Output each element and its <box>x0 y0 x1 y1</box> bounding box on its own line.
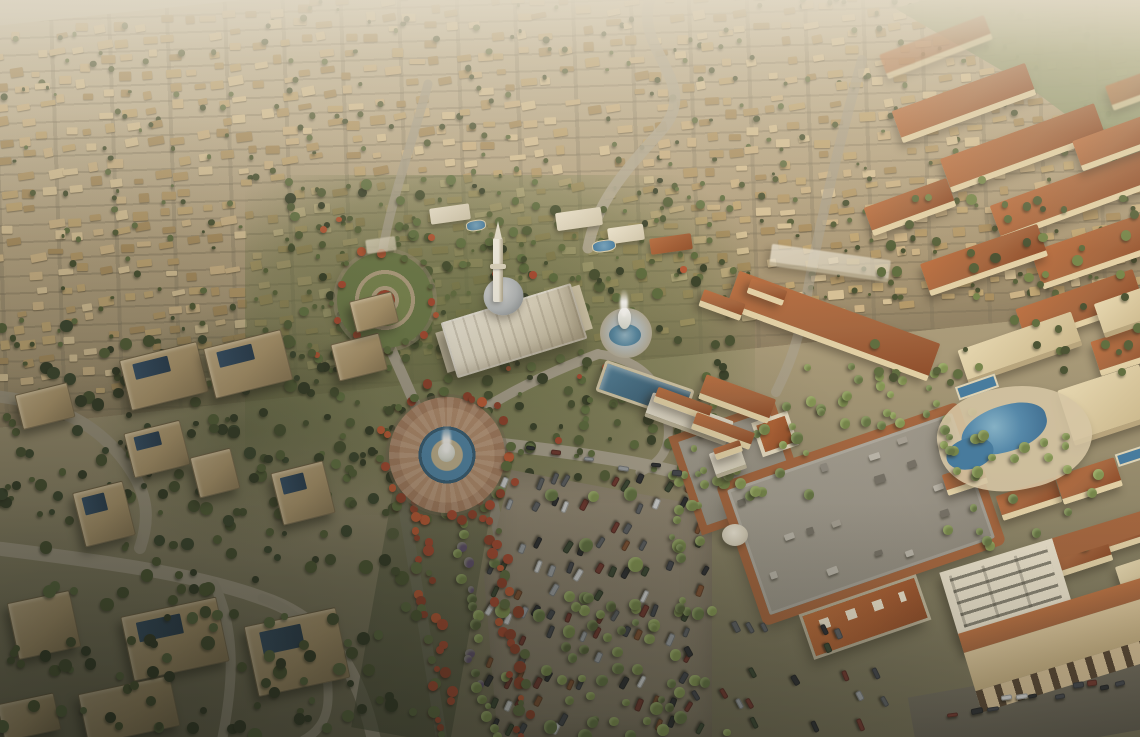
flame-tree <box>438 731 445 737</box>
tree <box>274 424 287 437</box>
flame-tree <box>513 606 525 618</box>
palm-tree <box>481 711 492 722</box>
flame-tree <box>437 724 444 731</box>
tree <box>189 584 199 594</box>
tree <box>1024 273 1034 283</box>
tree <box>932 237 941 246</box>
tree <box>209 623 218 632</box>
tree <box>652 288 663 299</box>
tree <box>346 418 355 427</box>
tree <box>330 387 340 397</box>
palm-tree <box>667 679 676 688</box>
tree <box>413 218 421 226</box>
tree <box>446 175 456 185</box>
flame-tree <box>495 618 503 626</box>
tree <box>333 663 346 676</box>
tree <box>320 226 327 233</box>
tree <box>385 698 399 712</box>
palm-tree <box>587 620 598 631</box>
palm-tree <box>628 557 643 572</box>
palm-tree <box>1063 465 1072 474</box>
palm-tree <box>723 729 731 737</box>
tree <box>518 392 523 397</box>
palm-tree <box>578 729 592 737</box>
palm-tree <box>533 609 546 622</box>
rooftop-ac-unit <box>874 474 886 485</box>
tree <box>0 323 7 333</box>
tree <box>1061 346 1070 355</box>
palm-tree <box>571 602 581 612</box>
tree <box>532 179 538 185</box>
palm-tree <box>686 500 698 512</box>
palm-tree <box>840 418 851 429</box>
palm-tree <box>1064 508 1072 516</box>
palm-tree <box>563 625 576 638</box>
tree <box>1118 368 1126 376</box>
tree <box>175 571 183 579</box>
tree <box>947 379 954 386</box>
tree <box>1101 340 1110 349</box>
palm-tree <box>625 730 636 737</box>
palm-tree <box>471 682 482 693</box>
tree <box>223 515 235 527</box>
tree <box>1042 271 1049 278</box>
flame-tree <box>469 396 476 403</box>
tree <box>719 259 726 266</box>
tree <box>568 400 576 408</box>
palm-tree <box>603 633 612 642</box>
tree <box>1060 366 1068 374</box>
tree <box>531 240 536 245</box>
rooftop-ac-unit <box>905 550 914 558</box>
tree <box>978 176 986 184</box>
tree <box>597 278 602 283</box>
palm-tree <box>670 649 682 661</box>
tree <box>346 647 358 659</box>
flame-tree <box>411 562 423 574</box>
palm-tree <box>695 471 702 478</box>
tree <box>72 425 84 437</box>
flame-tree <box>499 416 508 425</box>
tree <box>512 197 520 205</box>
tree <box>303 420 309 426</box>
palm-tree <box>622 699 630 707</box>
flame-tree <box>501 461 512 472</box>
tree <box>874 367 884 377</box>
palm-tree <box>1062 433 1070 441</box>
flame-tree <box>392 501 402 511</box>
tree <box>630 440 639 449</box>
tree <box>347 680 355 688</box>
tree <box>361 179 372 190</box>
tree <box>725 335 736 346</box>
palm-tree <box>946 434 953 441</box>
tree <box>870 339 880 349</box>
palm-tree <box>632 664 644 676</box>
solar-panel <box>280 473 307 495</box>
tree <box>322 723 332 733</box>
gazebo <box>722 524 748 546</box>
flame-tree <box>447 686 458 697</box>
tree <box>3 413 11 421</box>
tree <box>357 704 367 714</box>
tree <box>456 238 466 248</box>
tree <box>537 373 548 384</box>
tree <box>146 696 156 706</box>
tree <box>889 373 898 382</box>
flame-tree <box>437 619 448 630</box>
solar-panel <box>216 344 255 368</box>
flame-tree <box>477 397 487 407</box>
palm-tree <box>673 516 681 524</box>
tree <box>308 349 316 357</box>
flame-tree <box>376 455 384 463</box>
rooftop-ac-unit <box>769 570 778 579</box>
car <box>550 449 561 455</box>
flame-tree <box>510 644 521 655</box>
tree <box>193 421 199 427</box>
tree <box>1133 323 1140 333</box>
flame-tree <box>457 515 467 525</box>
tree <box>344 639 352 647</box>
tree <box>365 426 374 435</box>
palm-tree <box>561 642 572 653</box>
rooftop-ac-unit <box>868 452 880 461</box>
tree <box>479 188 485 194</box>
palm-tree <box>804 364 811 371</box>
tree <box>248 728 262 737</box>
tree <box>120 338 132 350</box>
palm-tree <box>612 647 623 658</box>
tree <box>1119 195 1127 203</box>
flame-tree <box>377 426 385 434</box>
minaret <box>493 238 503 302</box>
palm-tree <box>803 450 809 456</box>
tree <box>59 659 72 672</box>
tree <box>518 449 524 455</box>
tree <box>269 687 280 698</box>
tree <box>1116 270 1125 279</box>
flame-tree <box>439 387 449 397</box>
tree <box>582 357 592 367</box>
palm-tree <box>782 402 791 411</box>
tree <box>261 678 272 689</box>
tree <box>1023 238 1032 247</box>
flame-tree <box>401 255 408 262</box>
flame-tree <box>440 667 451 678</box>
rooftop-ac-unit <box>907 459 918 469</box>
tree <box>0 488 8 500</box>
tree <box>43 585 56 598</box>
palm-tree <box>541 665 552 676</box>
tree <box>967 249 975 257</box>
palm-tree <box>982 536 992 546</box>
tree <box>892 294 899 301</box>
tree <box>691 252 698 259</box>
tree <box>319 241 326 248</box>
palm-tree <box>1044 453 1054 463</box>
flame-tree <box>402 338 410 346</box>
palm-tree <box>883 409 891 417</box>
tree <box>304 650 317 663</box>
tree <box>343 474 351 482</box>
flame-tree <box>500 599 510 609</box>
palm-tree <box>775 468 785 478</box>
tree <box>577 374 582 379</box>
tree <box>188 500 200 512</box>
tree <box>96 454 108 466</box>
rooftop-ac-unit <box>933 483 944 491</box>
tree <box>587 397 593 403</box>
tree <box>379 554 391 566</box>
tree <box>334 441 346 453</box>
palm-tree <box>943 525 953 535</box>
car <box>1087 679 1098 686</box>
tree <box>1033 341 1041 349</box>
tree <box>190 569 198 577</box>
solar-panel <box>82 493 108 515</box>
palm-tree <box>568 653 578 663</box>
tree <box>316 254 321 259</box>
tree <box>1033 196 1043 206</box>
flame-tree <box>520 649 530 659</box>
tree <box>284 320 293 329</box>
tree <box>164 671 175 682</box>
tree <box>521 256 527 262</box>
palm-tree <box>861 416 872 427</box>
flame-tree <box>487 548 498 559</box>
palm-tree <box>945 446 955 456</box>
tree <box>201 636 215 650</box>
flame-tree <box>428 656 436 664</box>
palm-tree <box>779 441 788 450</box>
tree <box>116 672 125 681</box>
tree <box>877 267 886 276</box>
rooftop-ac-unit <box>940 508 951 517</box>
tree <box>1002 201 1009 208</box>
tree <box>234 720 247 733</box>
palm-tree <box>470 619 481 630</box>
palm-tree <box>842 391 852 401</box>
tree <box>126 412 133 419</box>
palm-tree <box>1008 494 1019 505</box>
flame-tree <box>423 379 433 389</box>
tree <box>190 397 201 408</box>
tree <box>376 696 384 704</box>
palm-tree <box>877 421 886 430</box>
tree <box>1055 325 1063 333</box>
tree <box>559 424 564 429</box>
palm-tree <box>692 607 705 620</box>
palm-tree <box>806 396 817 407</box>
tree <box>99 348 110 359</box>
tree <box>663 197 673 207</box>
palm-tree <box>650 702 663 715</box>
tree <box>707 222 712 227</box>
aerial-community-render <box>0 0 1140 737</box>
tree <box>336 217 342 223</box>
flame-tree <box>381 462 390 471</box>
palm-tree <box>675 603 685 613</box>
tree <box>357 632 370 645</box>
rooftop-ac-unit <box>784 532 795 541</box>
roundabout-fountain-spray <box>442 425 451 453</box>
palm-tree <box>898 376 907 385</box>
palm-tree <box>564 591 575 602</box>
minaret-balcony <box>490 264 506 269</box>
tree <box>600 470 611 481</box>
tree <box>264 455 273 464</box>
tree <box>141 569 154 582</box>
palm-tree <box>674 687 686 699</box>
palm-tree <box>657 724 669 736</box>
flame-tree <box>514 661 526 673</box>
tree <box>509 227 519 237</box>
rooftop-ac-unit <box>874 549 883 556</box>
tree <box>143 335 156 348</box>
flame-tree <box>411 512 421 522</box>
palm-tree <box>676 544 683 551</box>
tree <box>402 354 410 362</box>
tree <box>532 202 540 210</box>
tree <box>966 194 977 205</box>
flame-tree <box>338 281 346 289</box>
tree <box>164 614 171 621</box>
tree <box>158 489 168 499</box>
palm-tree <box>665 703 674 712</box>
tree <box>257 464 266 473</box>
tree <box>12 481 21 490</box>
palm-tree <box>707 606 717 616</box>
rooftop-ac-unit <box>831 519 842 528</box>
tree <box>12 428 20 436</box>
flame-tree <box>384 346 392 354</box>
flame-tree <box>423 545 435 557</box>
palm-tree <box>468 602 477 611</box>
central-fountain-roundabout <box>389 397 505 513</box>
tree <box>318 202 325 209</box>
tree <box>325 554 337 566</box>
palm-tree <box>674 711 688 725</box>
palm-tree <box>578 675 586 683</box>
flame-tree <box>395 404 402 411</box>
tree <box>403 224 409 230</box>
tree <box>266 528 274 536</box>
tree <box>122 544 129 551</box>
flame-tree <box>357 247 366 256</box>
solar-panel <box>132 356 171 380</box>
palm-tree <box>649 623 658 632</box>
tree <box>886 240 897 251</box>
tree <box>411 610 422 621</box>
tree <box>200 502 213 515</box>
tree <box>141 483 147 489</box>
palm-tree <box>596 675 608 687</box>
flame-tree <box>496 489 505 498</box>
tree <box>654 218 659 223</box>
tree <box>564 386 573 395</box>
tree <box>1032 319 1040 327</box>
tree <box>177 584 187 594</box>
tree <box>230 414 238 422</box>
flame-tree <box>429 577 436 584</box>
tree <box>276 450 286 460</box>
tree <box>226 548 237 559</box>
rooftop-ac-unit <box>806 527 815 536</box>
tree <box>680 266 686 272</box>
tree <box>299 354 305 360</box>
palm-tree <box>544 720 558 734</box>
tree <box>391 567 400 576</box>
tree <box>555 437 562 444</box>
tree <box>298 382 310 394</box>
palm-tree <box>676 553 686 563</box>
tree <box>530 423 537 430</box>
tree <box>81 646 91 656</box>
tree <box>359 560 373 574</box>
tree <box>319 273 327 281</box>
tree <box>168 595 178 605</box>
flame-tree <box>420 515 430 525</box>
tree <box>664 438 675 449</box>
tree <box>233 508 241 516</box>
car <box>672 470 682 477</box>
tree <box>199 583 212 596</box>
tree <box>1121 293 1129 301</box>
tree <box>969 263 979 273</box>
rooftop-ac-unit <box>896 436 907 445</box>
palm-tree <box>750 486 761 497</box>
tree <box>254 702 261 709</box>
tree <box>700 264 708 272</box>
tree <box>14 342 20 348</box>
palm-tree <box>1062 442 1070 450</box>
tree <box>127 636 136 645</box>
tree <box>360 459 367 466</box>
tree <box>209 424 219 434</box>
tree <box>290 351 297 358</box>
rooftop-ac-unit <box>826 566 839 577</box>
palm-tree <box>1093 469 1104 480</box>
palm-tree <box>759 424 770 435</box>
tree <box>1072 255 1083 266</box>
flame-tree <box>526 710 535 719</box>
rooftop-ac-unit <box>820 463 829 473</box>
tree <box>401 602 411 612</box>
tree <box>287 203 295 211</box>
tree <box>608 287 615 294</box>
tree <box>187 612 199 624</box>
palm-tree <box>933 400 940 407</box>
tree <box>40 650 52 662</box>
tree <box>56 705 68 717</box>
flame-tree <box>518 733 524 737</box>
solar-panel <box>133 431 161 451</box>
palm-tree <box>817 408 825 416</box>
tree <box>975 363 983 371</box>
tree <box>152 557 161 566</box>
fountain-spray <box>620 289 628 317</box>
tree <box>66 637 76 647</box>
tree <box>35 479 47 491</box>
tree <box>636 268 647 279</box>
palm-tree <box>940 425 950 435</box>
tree <box>963 347 969 353</box>
tree <box>252 576 259 583</box>
tree <box>711 340 721 350</box>
tree <box>396 196 405 205</box>
tree <box>158 510 163 515</box>
